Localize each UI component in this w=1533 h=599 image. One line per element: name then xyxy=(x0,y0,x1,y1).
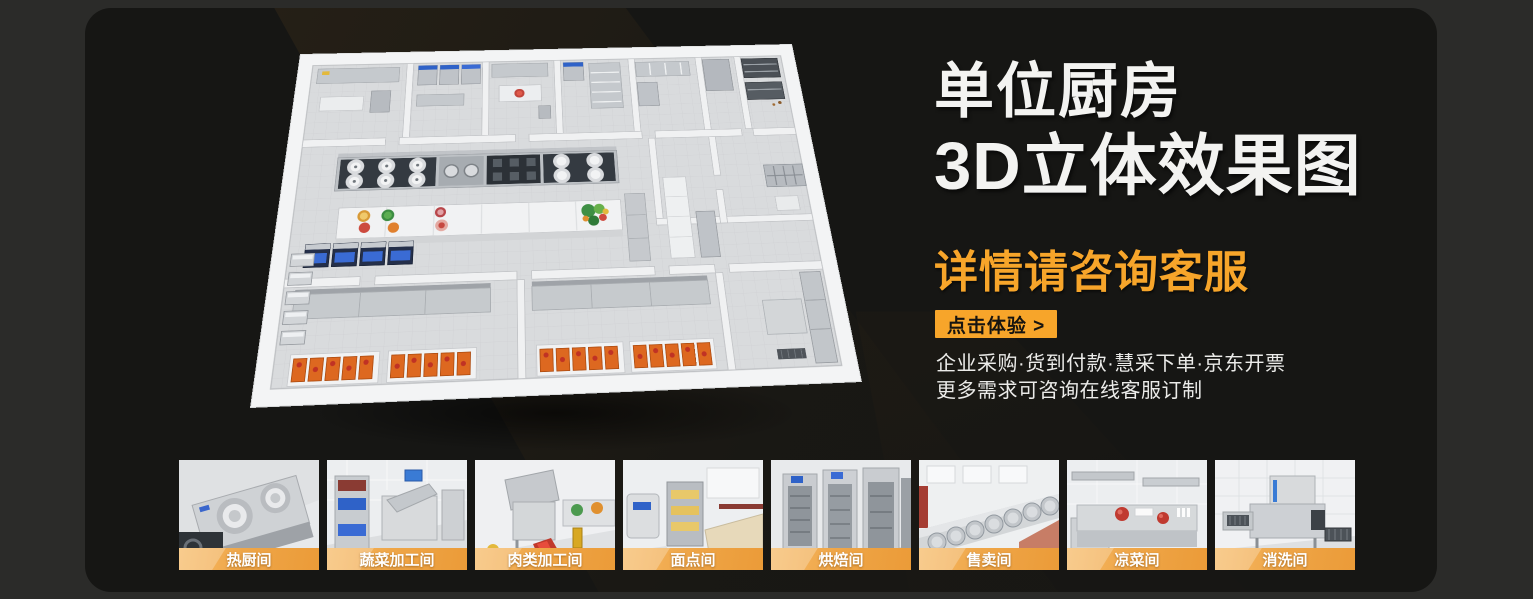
floorplan-cooking-line xyxy=(334,146,619,191)
hero-title: 单位厨房 3D立体效果图 xyxy=(934,56,1362,206)
thumbnail-label: 凉菜间 xyxy=(1067,548,1207,570)
thumbnail-label: 消洗间 xyxy=(1215,548,1355,570)
hero-description: 企业采购·货到付款·慧采下单·京东开票 更多需求可咨询在线客服订制 xyxy=(936,351,1285,405)
hero-title-line2: 3D立体效果图 xyxy=(934,128,1362,206)
thumbnail-meat-processing[interactable]: 肉类加工间 xyxy=(475,460,615,570)
thumbnail-vegetable-processing[interactable]: 蔬菜加工间 xyxy=(327,460,467,570)
thumbnail-washing-room[interactable]: 消洗间 xyxy=(1215,460,1355,570)
thumbnail-label: 烘焙间 xyxy=(771,548,911,570)
cta-button[interactable]: 点击体验 > xyxy=(935,310,1057,338)
kitchen-promo-banner: 单位厨房 3D立体效果图 详情请咨询客服 点击体验 > 企业采购·货到付款·慧采… xyxy=(0,0,1533,599)
thumbnail-cold-dish-room[interactable]: 凉菜间 xyxy=(1067,460,1207,570)
thumbnail-label: 热厨间 xyxy=(179,548,319,570)
thumbnail-pastry-room[interactable]: 面点间 xyxy=(623,460,763,570)
kitchen-3d-floorplan-image xyxy=(250,44,862,408)
thumbnail-label: 蔬菜加工间 xyxy=(327,548,467,570)
thumbnail-label: 面点间 xyxy=(623,548,763,570)
hero-title-line1: 单位厨房 xyxy=(934,56,1362,128)
thumbnail-hot-kitchen[interactable]: 热厨间 xyxy=(179,460,319,570)
hero-description-line1: 企业采购·货到付款·慧采下单·京东开票 xyxy=(936,351,1285,378)
thumbnail-label: 肉类加工间 xyxy=(475,548,615,570)
thumbnail-baking-room[interactable]: 烘焙间 xyxy=(771,460,911,570)
thumbnail-selling-room[interactable]: 售卖间 xyxy=(919,460,1059,570)
room-thumbnail-strip: 热厨间 蔬菜加工间 xyxy=(179,460,1355,570)
thumbnail-label: 售卖间 xyxy=(919,548,1059,570)
hero-subtitle: 详情请咨询客服 xyxy=(934,248,1249,298)
hero-description-line2: 更多需求可咨询在线客服订制 xyxy=(936,378,1285,405)
